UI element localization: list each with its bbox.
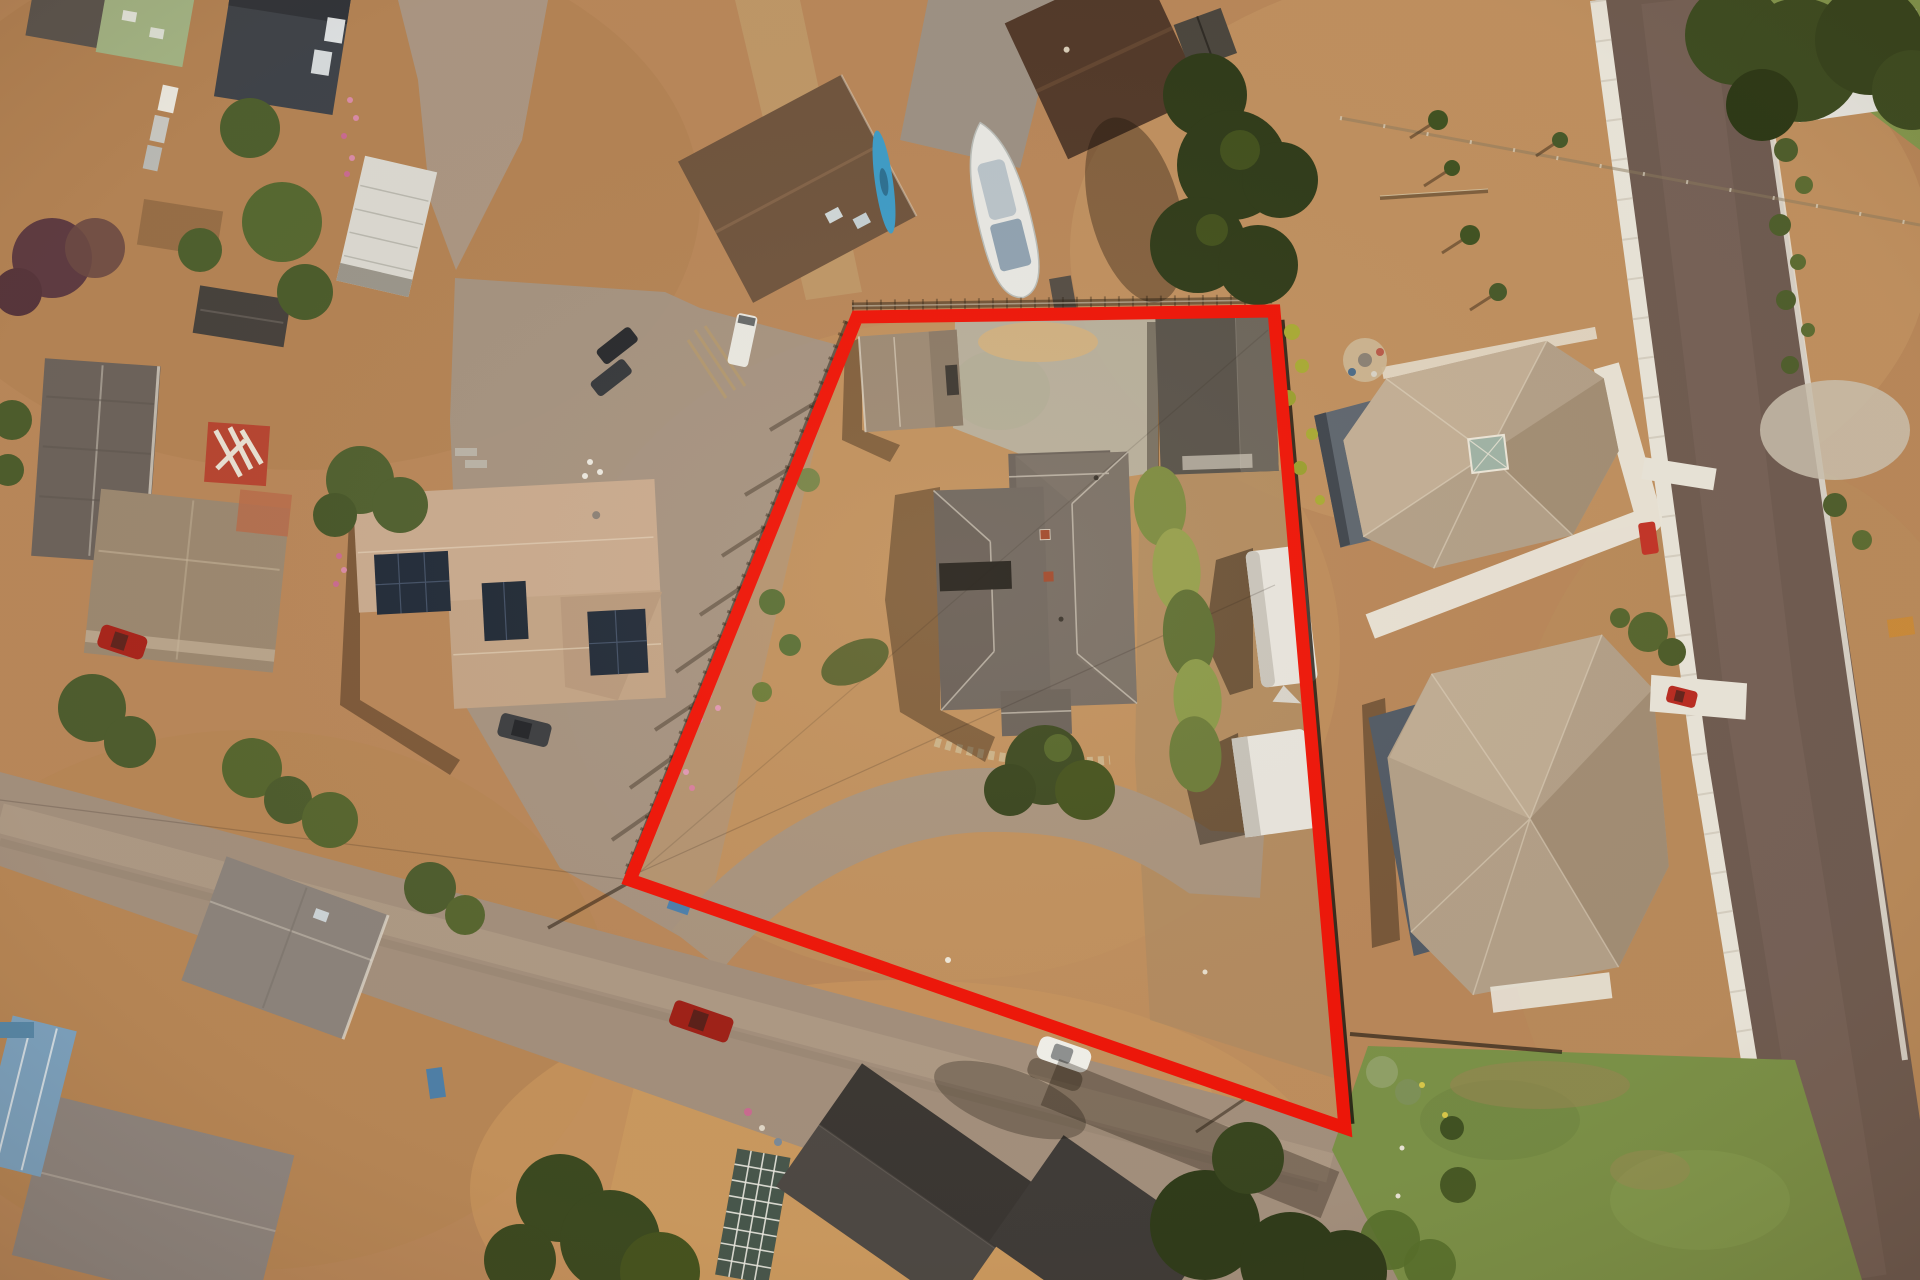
aerial-photo: [0, 0, 1920, 1280]
photo-vignette: [0, 0, 1920, 1280]
aerial-scene: [0, 0, 1920, 1280]
